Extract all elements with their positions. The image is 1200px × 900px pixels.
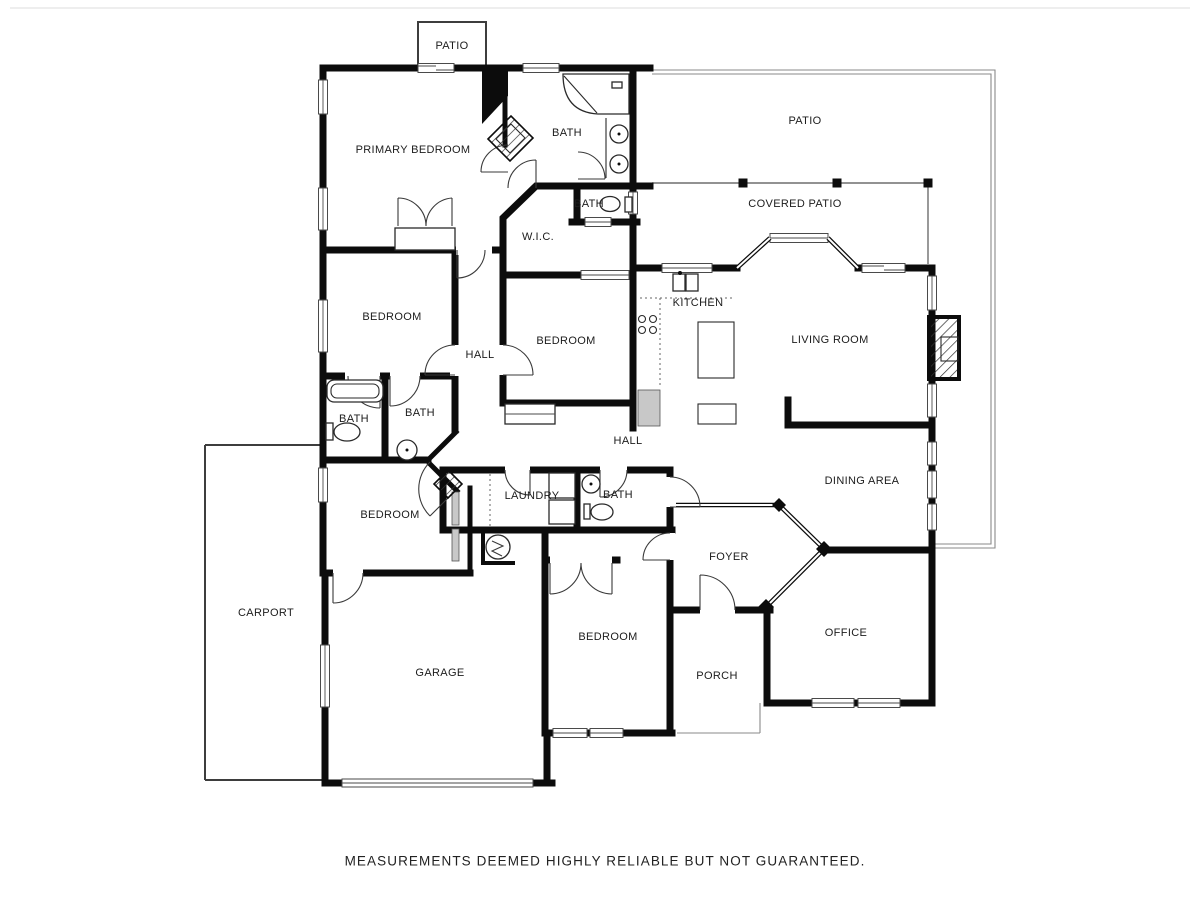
room-label-walk-in-closet: W.I.C. [522, 231, 554, 243]
faucet [678, 271, 682, 275]
room-label-bedroom-bottom: BEDROOM [578, 631, 637, 643]
room-label-hall-upper: HALL [466, 349, 495, 361]
stove-burner [639, 327, 646, 334]
room-label-primary-bath: BATH [552, 127, 582, 139]
room-label-bath-lower: BATH [603, 489, 633, 501]
shower [488, 116, 533, 161]
room-label-bedroom-left: BEDROOM [362, 311, 421, 323]
patio-post [739, 179, 748, 188]
room-label-primary-bedroom: PRIMARY BEDROOM [356, 144, 471, 156]
room-label-office: OFFICE [825, 627, 867, 639]
laundry-bath-fixtures [434, 470, 613, 559]
room-label-toilet-bath: BATH [574, 198, 604, 210]
kitchen-fixtures [638, 271, 736, 426]
room-label-kitchen: KITCHEN [673, 297, 724, 309]
room-label-bath-left: BATH [339, 413, 369, 425]
toilet-tank [625, 197, 632, 212]
walls [323, 68, 932, 783]
tub-faucet [612, 82, 622, 88]
room-label-porch: PORCH [696, 670, 737, 682]
room-label-carport: CARPORT [238, 607, 294, 619]
toilet [334, 423, 360, 441]
floor-plan-svg [0, 0, 1200, 900]
toilet-tank [584, 504, 590, 519]
primary-closet [395, 228, 455, 250]
room-label-bath-middle: BATH [405, 407, 435, 419]
room-label-hall-lower: HALL [614, 435, 643, 447]
fireplace [929, 317, 959, 379]
room-label-dining-area: DINING AREA [825, 475, 900, 487]
kitchen-sink-basin [686, 274, 698, 291]
porch-outline [677, 703, 760, 733]
sliding-closet-door [452, 529, 459, 561]
sliding-closet-door [452, 492, 459, 525]
kitchen-peninsula [698, 404, 736, 424]
room-label-patio-top: PATIO [435, 40, 468, 52]
room-label-bedroom-lower-left: BEDROOM [360, 509, 419, 521]
water-heater [486, 535, 510, 559]
room-label-garage: GARAGE [415, 667, 464, 679]
dryer [549, 500, 575, 524]
covered-patio-line [652, 183, 928, 264]
toilet [591, 504, 613, 520]
stove-burner [650, 327, 657, 334]
stove-burner [650, 316, 657, 323]
toilet-tank [326, 423, 333, 440]
disclaimer-text: MEASUREMENTS DEEMED HIGHLY RELIABLE BUT … [345, 854, 866, 869]
room-label-foyer: FOYER [709, 551, 749, 563]
room-label-laundry: LAUNDRY [505, 490, 560, 502]
stove-burner [639, 316, 646, 323]
room-label-living-room: LIVING ROOM [791, 334, 868, 346]
room-label-covered-patio: COVERED PATIO [748, 198, 841, 210]
room-label-bedroom-center: BEDROOM [536, 335, 595, 347]
patio-right-outline-inner [652, 74, 991, 544]
patio-post [833, 179, 842, 188]
bathtub [327, 380, 383, 402]
corner-tub [563, 74, 629, 114]
room-label-patio-right: PATIO [788, 115, 821, 127]
fireplace-box [929, 317, 959, 379]
floor-plan: PATIO PRIMARY BEDROOM BATH PATIO COVERED… [0, 0, 1200, 900]
pantry-cabinet [638, 390, 660, 426]
kitchen-sink-basin [673, 274, 685, 291]
primary-bath-fixtures [482, 70, 632, 212]
kitchen-island [698, 322, 734, 378]
counter-edge [640, 298, 733, 388]
patio-right-outline-outer [652, 70, 995, 548]
patio-post [924, 179, 933, 188]
